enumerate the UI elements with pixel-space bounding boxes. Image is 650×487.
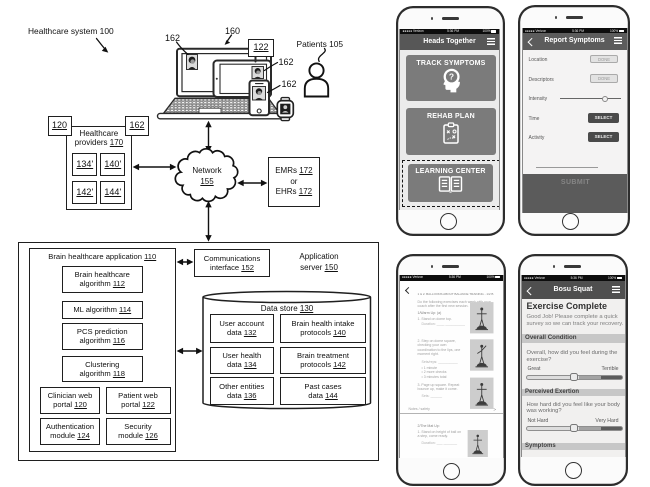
svg-text:?: ? [449, 71, 454, 81]
